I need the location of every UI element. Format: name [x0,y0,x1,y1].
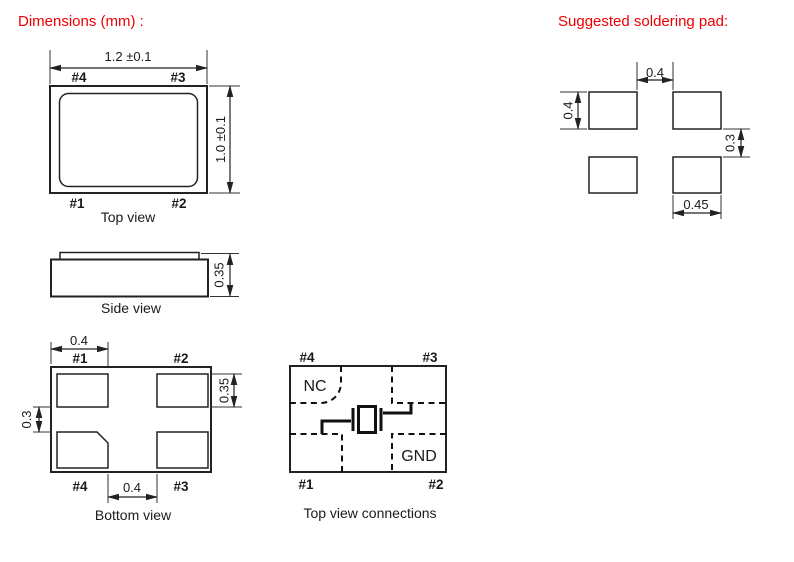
bottom-view-gap-vertical-extension-lines [33,407,51,432]
dimensions-title: Dimensions (mm) : [18,13,144,30]
bottom-view-pin3-label: #3 [173,479,189,494]
bottom-view-pad2 [157,374,208,407]
bottom-view-pad3 [157,432,208,468]
side-view-height-dim-label: 0.35 [212,262,227,287]
top-view: 1.2 ±0.1 #4 #3 1.0 ±0.1 #1 #2 Top view [50,49,240,225]
datasheet-dimension-drawing: Dimensions (mm) : Suggested soldering pa… [0,0,794,562]
bottom-view-gap-horizontal-dim-label: 0.4 [123,480,141,495]
side-view-caption: Side view [101,300,162,316]
soldering-gap-horizontal-dim-label: 0.4 [646,65,664,80]
connections-pin2-label: #2 [428,477,443,492]
top-view-caption: Top view [101,209,156,225]
bottom-view-pad-width-dim-label: 0.4 [70,333,88,348]
top-view-width-dim-label: 1.2 ±0.1 [105,49,152,64]
bottom-view-pin1-label: #1 [72,351,88,366]
top-view-pin2-label: #2 [171,196,186,211]
top-view-pin3-label: #3 [170,70,186,85]
soldering-pad-bottom-right [673,157,721,193]
side-view-body [51,260,208,297]
top-view-pin4-label: #4 [71,70,87,85]
top-view-lid-outline [60,94,198,187]
soldering-pad-width-dim-label: 0.45 [683,197,708,212]
top-view-pin1-label: #1 [69,196,85,211]
bottom-view: 0.4 #1 #2 0.35 0.3 0.4 #4 #3 Bottom view [19,333,242,523]
bottom-view-pin2-label: #2 [173,351,188,366]
connections-gnd-label: GND [401,448,437,465]
connections-pin1-label: #1 [298,477,314,492]
bottom-view-pad1 [57,374,108,407]
connections-nc-label: NC [303,378,326,395]
bottom-view-pin4-label: #4 [72,479,88,494]
bottom-view-pad-height-dim-label: 0.35 [217,378,232,403]
soldering-pad-title: Suggested soldering pad: [558,13,728,30]
soldering-pad-height-dim-label: 0.4 [561,101,576,119]
connections-caption: Top view connections [303,505,436,521]
top-view-connections: #4 #3 NC GND #1 #2 Top view connections [290,350,446,521]
side-view-lid [60,253,199,260]
bottom-view-gap-vertical-dim-label: 0.3 [19,410,34,428]
drawing-svg: Dimensions (mm) : Suggested soldering pa… [0,0,794,562]
bottom-view-pad4-chamfered [57,432,108,468]
side-view: 0.35 Side view [51,253,239,317]
soldering-pad-top-right [673,92,721,129]
connections-pin3-label: #3 [422,350,438,365]
soldering-pad-layout: 0.4 0.4 0.3 0.45 [560,62,750,219]
soldering-pad-top-left [589,92,637,129]
soldering-gap-vertical-dim-label: 0.3 [723,134,738,152]
bottom-view-caption: Bottom view [95,507,172,523]
top-view-height-dim-label: 1.0 ±0.1 [213,116,228,163]
soldering-pad-bottom-left [589,157,637,193]
connections-pin4-label: #4 [299,350,315,365]
crystal-element-box [359,407,376,433]
